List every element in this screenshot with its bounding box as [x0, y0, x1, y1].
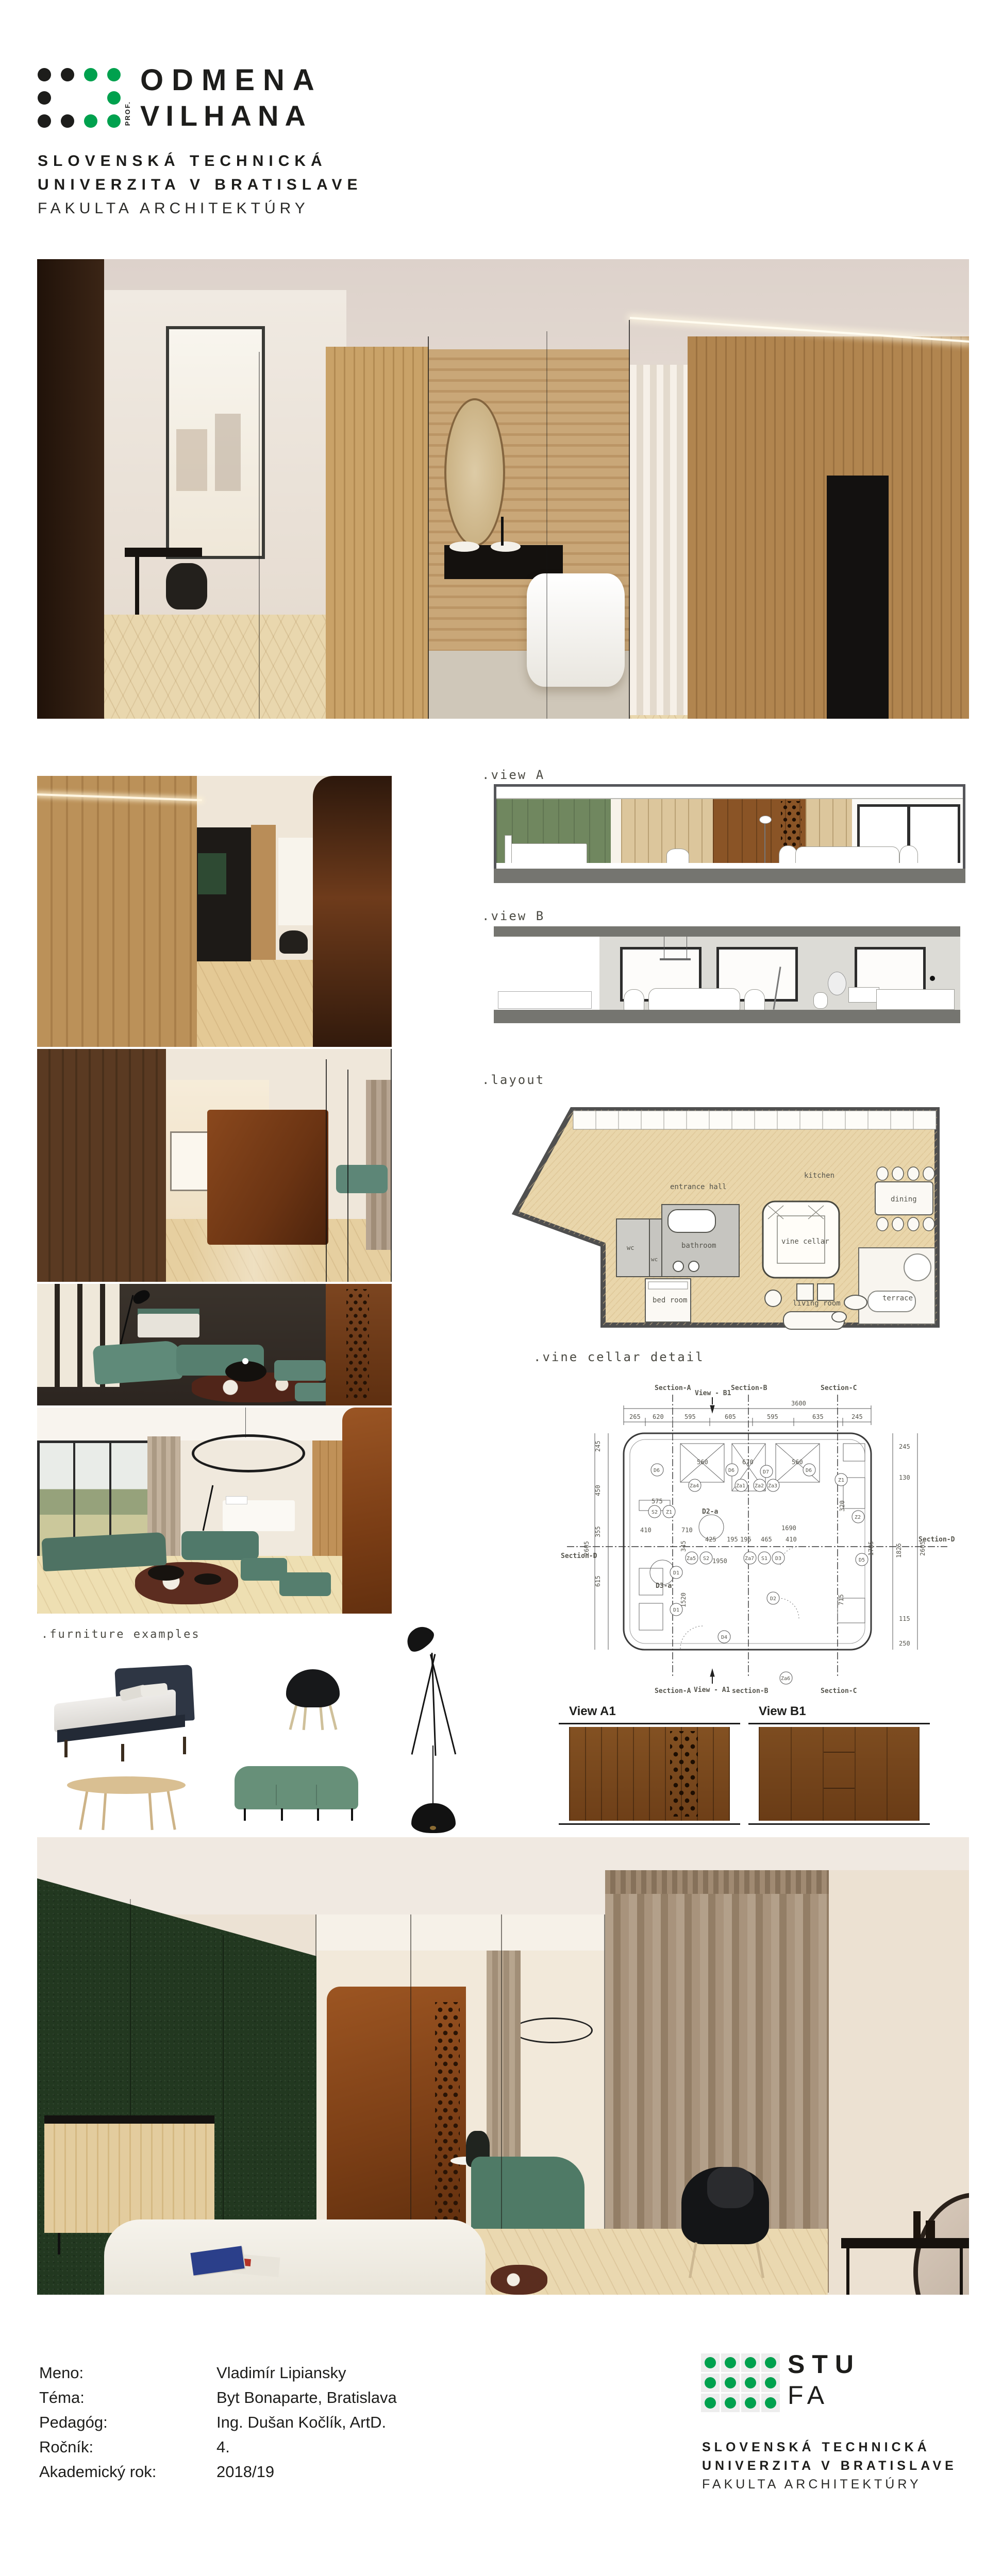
sink-basin	[491, 541, 521, 552]
svg-text:115: 115	[899, 1615, 910, 1622]
plinth	[494, 869, 965, 883]
faucet	[501, 517, 504, 546]
svg-text:Section-A: Section-A	[655, 1384, 691, 1392]
svg-text:250: 250	[899, 1640, 910, 1647]
logo-dot	[84, 114, 97, 128]
table-top	[67, 1776, 186, 1794]
furniture-floor-lamp	[402, 1628, 474, 1760]
pendant-cord	[664, 937, 664, 959]
stu-dot	[761, 2394, 780, 2412]
logo-dot	[38, 114, 51, 128]
vanity-leg	[846, 2248, 849, 2295]
floor-lamp-head	[759, 816, 772, 824]
bed-reflection	[138, 1314, 199, 1337]
throw-blanket	[707, 2167, 754, 2208]
ottoman	[279, 1572, 331, 1596]
studio-name-line2: VILHANA	[140, 99, 312, 132]
wood-wardrobe	[37, 776, 197, 1047]
svg-text:Section-C: Section-C	[821, 1687, 857, 1695]
svg-text:560: 560	[792, 1459, 803, 1466]
desk-silhouette	[125, 548, 202, 557]
wood-door	[312, 1440, 342, 1573]
svg-text:1690: 1690	[781, 1524, 796, 1532]
stu-dot	[741, 2394, 760, 2412]
logo-dot	[107, 91, 121, 105]
svg-text:Za4: Za4	[690, 1483, 699, 1489]
desk-leg	[135, 557, 139, 619]
coffee-table	[148, 1565, 184, 1581]
section-label-view-a: .view A	[482, 768, 545, 782]
stu-dot	[741, 2374, 760, 2392]
floor-lamp-head	[131, 1287, 152, 1306]
svg-text:View - B1: View - B1	[695, 1389, 731, 1397]
corten-cube	[207, 1110, 328, 1245]
building-silhouette	[176, 429, 207, 491]
section-label-layout: .layout	[482, 1073, 545, 1087]
lounger-silhouette	[498, 991, 592, 1009]
glass-edge	[347, 1070, 348, 1282]
stu-faculty: FA	[788, 2380, 829, 2410]
svg-text:710: 710	[681, 1527, 693, 1534]
side-table	[194, 1573, 221, 1585]
svg-text:Za5: Za5	[687, 1556, 696, 1562]
chair-leg	[289, 1702, 298, 1730]
furniture-table	[67, 1776, 186, 1832]
stu-university-line-1: SLOVENSKÁ TECHNICKÁ	[702, 2440, 930, 2455]
svg-text:560: 560	[697, 1459, 708, 1466]
dimension-text: 3600 265 620 595 605 595 635 245 245 450…	[583, 1400, 926, 1647]
section-label-view-b: .view B	[482, 909, 545, 923]
perfume-bottle	[913, 2211, 921, 2238]
logo-dot	[107, 68, 121, 81]
sofa-body	[235, 1766, 358, 1809]
svg-text:595: 595	[684, 1413, 696, 1420]
glass-edge	[326, 1059, 327, 1282]
svg-text:Section-D: Section-D	[561, 1552, 597, 1560]
cabinet-top	[44, 2115, 214, 2124]
footer-label-pedagog: Pedagóg:	[39, 2413, 108, 2432]
stu-university-line-2: UNIVERZITA V BRATISLAVE	[702, 2459, 957, 2473]
ottoman	[274, 1360, 326, 1381]
logo-dot	[107, 114, 121, 128]
plank-seam	[824, 1752, 855, 1753]
svg-text:D5: D5	[859, 1557, 865, 1563]
green-glass-tiles	[198, 853, 226, 894]
footer-value-meno: Vladimír Lipiansky	[216, 2364, 346, 2382]
studio-logo-dots-icon	[38, 68, 121, 128]
svg-text:1825: 1825	[895, 1543, 903, 1558]
cup	[242, 1358, 248, 1364]
side-table	[832, 1312, 846, 1322]
sofa-seam	[276, 1785, 277, 1805]
sofa-leg	[244, 1808, 246, 1821]
sofa-seam	[316, 1785, 317, 1805]
poster-canvas: ODMENA PROF. VILHANA SLOVENSKÁ TECHNICKÁ…	[0, 0, 1002, 2576]
bathtub	[668, 1210, 715, 1232]
svg-text:D6: D6	[654, 1468, 660, 1473]
floor-lamp-silhouette	[764, 820, 765, 863]
wood-panel-view-a1	[569, 1727, 730, 1821]
stu-dot	[741, 2353, 760, 2372]
wall-lamp	[930, 976, 935, 981]
green-bench-sofa	[41, 1532, 166, 1571]
svg-text:D7: D7	[763, 1469, 769, 1475]
footer-label-meno: Meno:	[39, 2364, 83, 2382]
logo-dot	[61, 91, 74, 105]
svg-text:355: 355	[594, 1526, 602, 1537]
svg-text:410: 410	[786, 1536, 797, 1543]
svg-text:D3-a: D3-a	[656, 1582, 672, 1590]
bottom-render-bedroom	[37, 1837, 969, 2295]
perforation-dots	[346, 1289, 369, 1400]
chair-silhouette	[279, 930, 308, 954]
stu-dot	[761, 2374, 780, 2392]
furniture-bed	[54, 1667, 204, 1762]
svg-text:S2: S2	[703, 1556, 709, 1562]
footer-value-tema: Byt Bonaparte, Bratislava	[216, 2388, 397, 2407]
section-label-wine-cellar: .vine cellar detail	[533, 1350, 705, 1364]
svg-text:S2: S2	[652, 1510, 658, 1515]
svg-text:3600: 3600	[791, 1400, 806, 1407]
table-leg	[102, 1790, 107, 1830]
coffee-table	[225, 1361, 266, 1382]
svg-text:Section-A: Section-A	[655, 1687, 691, 1695]
bed-pillows	[648, 1282, 688, 1289]
wood-cabinet	[44, 2124, 214, 2233]
svg-text:425: 425	[705, 1536, 716, 1543]
svg-text:Section-D: Section-D	[918, 1536, 955, 1544]
svg-text:605: 605	[725, 1413, 736, 1420]
panel-label-view-a1: View A1	[569, 1704, 616, 1719]
render-dark-living	[37, 1284, 392, 1405]
svg-text:615: 615	[594, 1575, 602, 1587]
terrace-tub	[904, 1254, 931, 1281]
bed-reflection	[223, 1500, 295, 1531]
svg-text:635: 635	[812, 1413, 824, 1420]
corten-volume	[313, 776, 392, 1047]
furniture-pendant-lamp	[407, 1745, 459, 1834]
svg-text:View - A1: View - A1	[694, 1686, 730, 1694]
stu-dot	[721, 2353, 740, 2372]
svg-text:465: 465	[761, 1536, 772, 1543]
tag-circles: D6 Za4 D6 Za1 Za2 Za3 D7 D6 Z1 S2 Z1 D2-…	[648, 1464, 868, 1684]
svg-text:Za3: Za3	[768, 1483, 777, 1489]
coffee-table	[844, 1295, 867, 1310]
svg-text:195: 195	[727, 1536, 738, 1543]
lintel	[496, 787, 963, 799]
wood-door	[251, 825, 276, 960]
sofa-leg	[317, 1808, 319, 1821]
svg-text:Section-B: Section-B	[731, 1384, 767, 1392]
svg-text:kitchen: kitchen	[804, 1172, 834, 1180]
pendant-cord	[687, 937, 687, 959]
render-bright-living	[37, 1408, 392, 1614]
shower-curtain	[630, 365, 688, 715]
section-text: Section-A Section-B Section-C Section-D …	[561, 1384, 955, 1695]
svg-text:D2: D2	[770, 1596, 776, 1602]
stu-dot	[761, 2353, 780, 2372]
vanity-desk	[841, 2238, 969, 2248]
sofa-leg	[281, 1808, 283, 1821]
svg-text:wc: wc	[627, 1244, 634, 1251]
sofa-silhouette	[648, 988, 740, 1011]
svg-text:section-B: section-B	[732, 1687, 769, 1695]
building-silhouette	[215, 414, 241, 491]
sink	[689, 1261, 699, 1272]
svg-text:245: 245	[899, 1443, 910, 1450]
chair-silhouette	[624, 989, 644, 1011]
lamp-head	[402, 1621, 438, 1655]
svg-text:D3: D3	[775, 1556, 781, 1562]
svg-text:245: 245	[594, 1440, 602, 1452]
logo-dot	[84, 68, 97, 81]
pillow	[226, 1496, 247, 1504]
chair-silhouette	[666, 849, 689, 863]
svg-text:245: 245	[851, 1413, 863, 1420]
chair-silhouette	[166, 563, 207, 609]
stu-acronym: STU	[788, 2349, 861, 2379]
perforation-dots	[670, 1731, 698, 1817]
svg-text:D6: D6	[728, 1468, 734, 1473]
lounge-chair	[765, 1290, 781, 1307]
svg-text:195: 195	[740, 1536, 751, 1543]
green-sofa	[93, 1340, 183, 1385]
stool-silhouette	[813, 992, 828, 1009]
bathtub	[527, 573, 625, 687]
svg-text:620: 620	[653, 1413, 664, 1420]
stu-dot	[721, 2374, 740, 2392]
stu-dot	[701, 2394, 720, 2412]
chair-silhouette	[744, 989, 765, 1011]
console-silhouette	[848, 987, 879, 1003]
svg-text:bed room: bed room	[653, 1296, 687, 1304]
logo-dot	[61, 68, 74, 81]
sink-basin	[449, 541, 479, 552]
bed-leg	[121, 1744, 124, 1761]
panel-label-view-b1: View B1	[759, 1704, 806, 1719]
headboard-silhouette	[505, 835, 512, 863]
stu-dot	[721, 2394, 740, 2412]
bed-leg	[64, 1740, 68, 1757]
svg-text:Za2: Za2	[755, 1483, 764, 1489]
section-label-furniture: .furniture examples	[41, 1628, 201, 1641]
footer-value-akademicky-rok: 2018/19	[216, 2463, 274, 2481]
chair-shell	[286, 1669, 340, 1707]
svg-text:S1: S1	[761, 1556, 767, 1562]
svg-text:Za7: Za7	[745, 1556, 754, 1562]
floor-plan-drawing: entrance hall kitchen dining wc wc bathr…	[495, 1095, 959, 1337]
svg-text:dining: dining	[891, 1195, 917, 1204]
university-line-1: SLOVENSKÁ TECHNICKÁ	[38, 152, 327, 170]
svg-text:Za1: Za1	[736, 1483, 745, 1489]
svg-text:1785: 1785	[867, 1541, 875, 1556]
elevation-view-b	[494, 926, 960, 1025]
elevation-a-interior	[496, 799, 963, 863]
sofa-leg	[351, 1808, 353, 1821]
chair-leg	[328, 1702, 338, 1730]
bed-leg	[183, 1737, 186, 1754]
svg-text:Z2: Z2	[855, 1515, 861, 1520]
armchair	[817, 1284, 834, 1300]
svg-text:vine cellar: vine cellar	[781, 1238, 829, 1246]
studio-name-prefix: PROF.	[124, 101, 131, 126]
bed-silhouette	[509, 843, 587, 863]
dark-wood-wall	[37, 1049, 166, 1282]
footer-label-tema: Téma:	[39, 2388, 85, 2407]
svg-text:Z1: Z1	[666, 1510, 672, 1515]
round-mirror	[444, 398, 505, 547]
svg-text:450: 450	[594, 1485, 602, 1496]
glass-edge	[428, 336, 429, 719]
cowhide-rug	[491, 2265, 547, 2295]
perfume-bottle	[926, 2221, 935, 2238]
stu-university-line-3: FAKULTA ARCHITEKTÚRY	[702, 2477, 922, 2492]
svg-text:D2-a: D2-a	[702, 1508, 718, 1516]
wc-room-2	[649, 1219, 662, 1277]
ring-chandelier	[192, 1434, 305, 1472]
logo-dot	[38, 68, 51, 81]
stu-dot	[701, 2353, 720, 2372]
glass-edge	[259, 352, 260, 719]
wood-panel-view-b1	[759, 1727, 920, 1821]
svg-text:265: 265	[629, 1413, 641, 1420]
logo-dot	[84, 91, 97, 105]
svg-text:Za6: Za6	[781, 1676, 790, 1682]
logo-dot	[61, 114, 74, 128]
glass-edge	[391, 1049, 392, 1282]
reflected-ceiling	[316, 1914, 605, 1951]
stu-logo-dots-icon	[701, 2353, 780, 2412]
wood-pillar	[326, 347, 429, 719]
svg-text:Z1: Z1	[838, 1478, 844, 1483]
green-sofa	[336, 1165, 388, 1193]
dark-kitchen-block	[197, 827, 251, 961]
svg-text:670: 670	[742, 1459, 754, 1466]
chair-silhouette	[899, 845, 918, 863]
dining-table-silhouette	[795, 846, 899, 863]
wine-cellar-detail-drawing: 3600 265 620 595 605 595 635 245 245 450…	[557, 1377, 959, 1696]
glass-edge	[546, 331, 547, 719]
table-leg	[79, 1790, 88, 1830]
door-jamb	[37, 259, 104, 719]
svg-text:575: 575	[652, 1498, 663, 1505]
pendant-bar	[660, 958, 691, 960]
svg-text:terrace: terrace	[882, 1294, 913, 1302]
table-leg	[166, 1790, 176, 1830]
render-wardrobe-kitchen	[37, 776, 392, 1047]
footer-label-rocnik: Ročník:	[39, 2438, 93, 2456]
chair-silhouette	[779, 845, 797, 863]
stu-dot	[701, 2374, 720, 2392]
corten-volume	[342, 1408, 392, 1614]
svg-text:Section-C: Section-C	[821, 1384, 857, 1392]
pendant-cord	[432, 1745, 433, 1805]
university-line-2: UNIVERZITA V BRATISLAVE	[38, 176, 363, 194]
svg-text:D1: D1	[673, 1570, 679, 1576]
studio-name-line1: ODMENA	[140, 63, 323, 97]
svg-text:1950: 1950	[712, 1557, 727, 1565]
bed-silhouette	[876, 989, 955, 1010]
hero-render-bathroom	[37, 259, 969, 719]
svg-text:715: 715	[838, 1594, 845, 1605]
armchair	[797, 1284, 813, 1300]
svg-text:D1: D1	[673, 1607, 679, 1613]
bed-foreground	[104, 2219, 486, 2295]
ceiling-band	[494, 926, 960, 937]
footer-value-pedagog: Ing. Dušan Kočlík, ArtD.	[216, 2413, 386, 2432]
dark-door	[827, 476, 889, 719]
university-line-3: FAKULTA ARCHITEKTÚRY	[38, 200, 309, 217]
render-corridor-corten-cube	[37, 1049, 392, 1282]
svg-text:130: 130	[899, 1474, 910, 1481]
perforation-dots	[435, 2002, 460, 2224]
plank-seam	[824, 1788, 855, 1789]
glass-edge	[629, 320, 630, 719]
svg-text:living room: living room	[793, 1299, 841, 1308]
footer-label-akademicky-rok: Akademický rok:	[39, 2463, 156, 2481]
svg-text:D6: D6	[806, 1468, 812, 1473]
vanity-leg	[960, 2248, 963, 2295]
pendant-bulb	[430, 1826, 436, 1830]
furniture-chair	[281, 1669, 345, 1731]
plinth	[494, 1010, 960, 1023]
furniture-sofa	[235, 1766, 360, 1824]
green-sofa	[181, 1531, 259, 1560]
logo-dot	[38, 91, 51, 105]
sink	[673, 1261, 683, 1272]
curtain-header	[605, 1870, 829, 1894]
cabinet-leg	[58, 2233, 60, 2255]
svg-text:410: 410	[640, 1527, 652, 1534]
table-leg	[148, 1790, 153, 1830]
svg-text:entrance hall: entrance hall	[670, 1183, 727, 1191]
svg-text:D4: D4	[721, 1635, 727, 1640]
svg-text:wc: wc	[651, 1256, 658, 1263]
lamp-cord	[245, 1408, 246, 1437]
svg-text:595: 595	[767, 1413, 778, 1420]
footer-value-rocnik: 4.	[216, 2438, 230, 2456]
svg-text:320: 320	[839, 1500, 846, 1512]
svg-text:345: 345	[680, 1540, 687, 1552]
svg-text:bathroom: bathroom	[681, 1242, 716, 1250]
elevation-view-a	[494, 784, 965, 883]
round-mirror	[828, 972, 846, 995]
reflected-ring-lamp	[512, 2018, 593, 2043]
curtain	[611, 799, 621, 863]
